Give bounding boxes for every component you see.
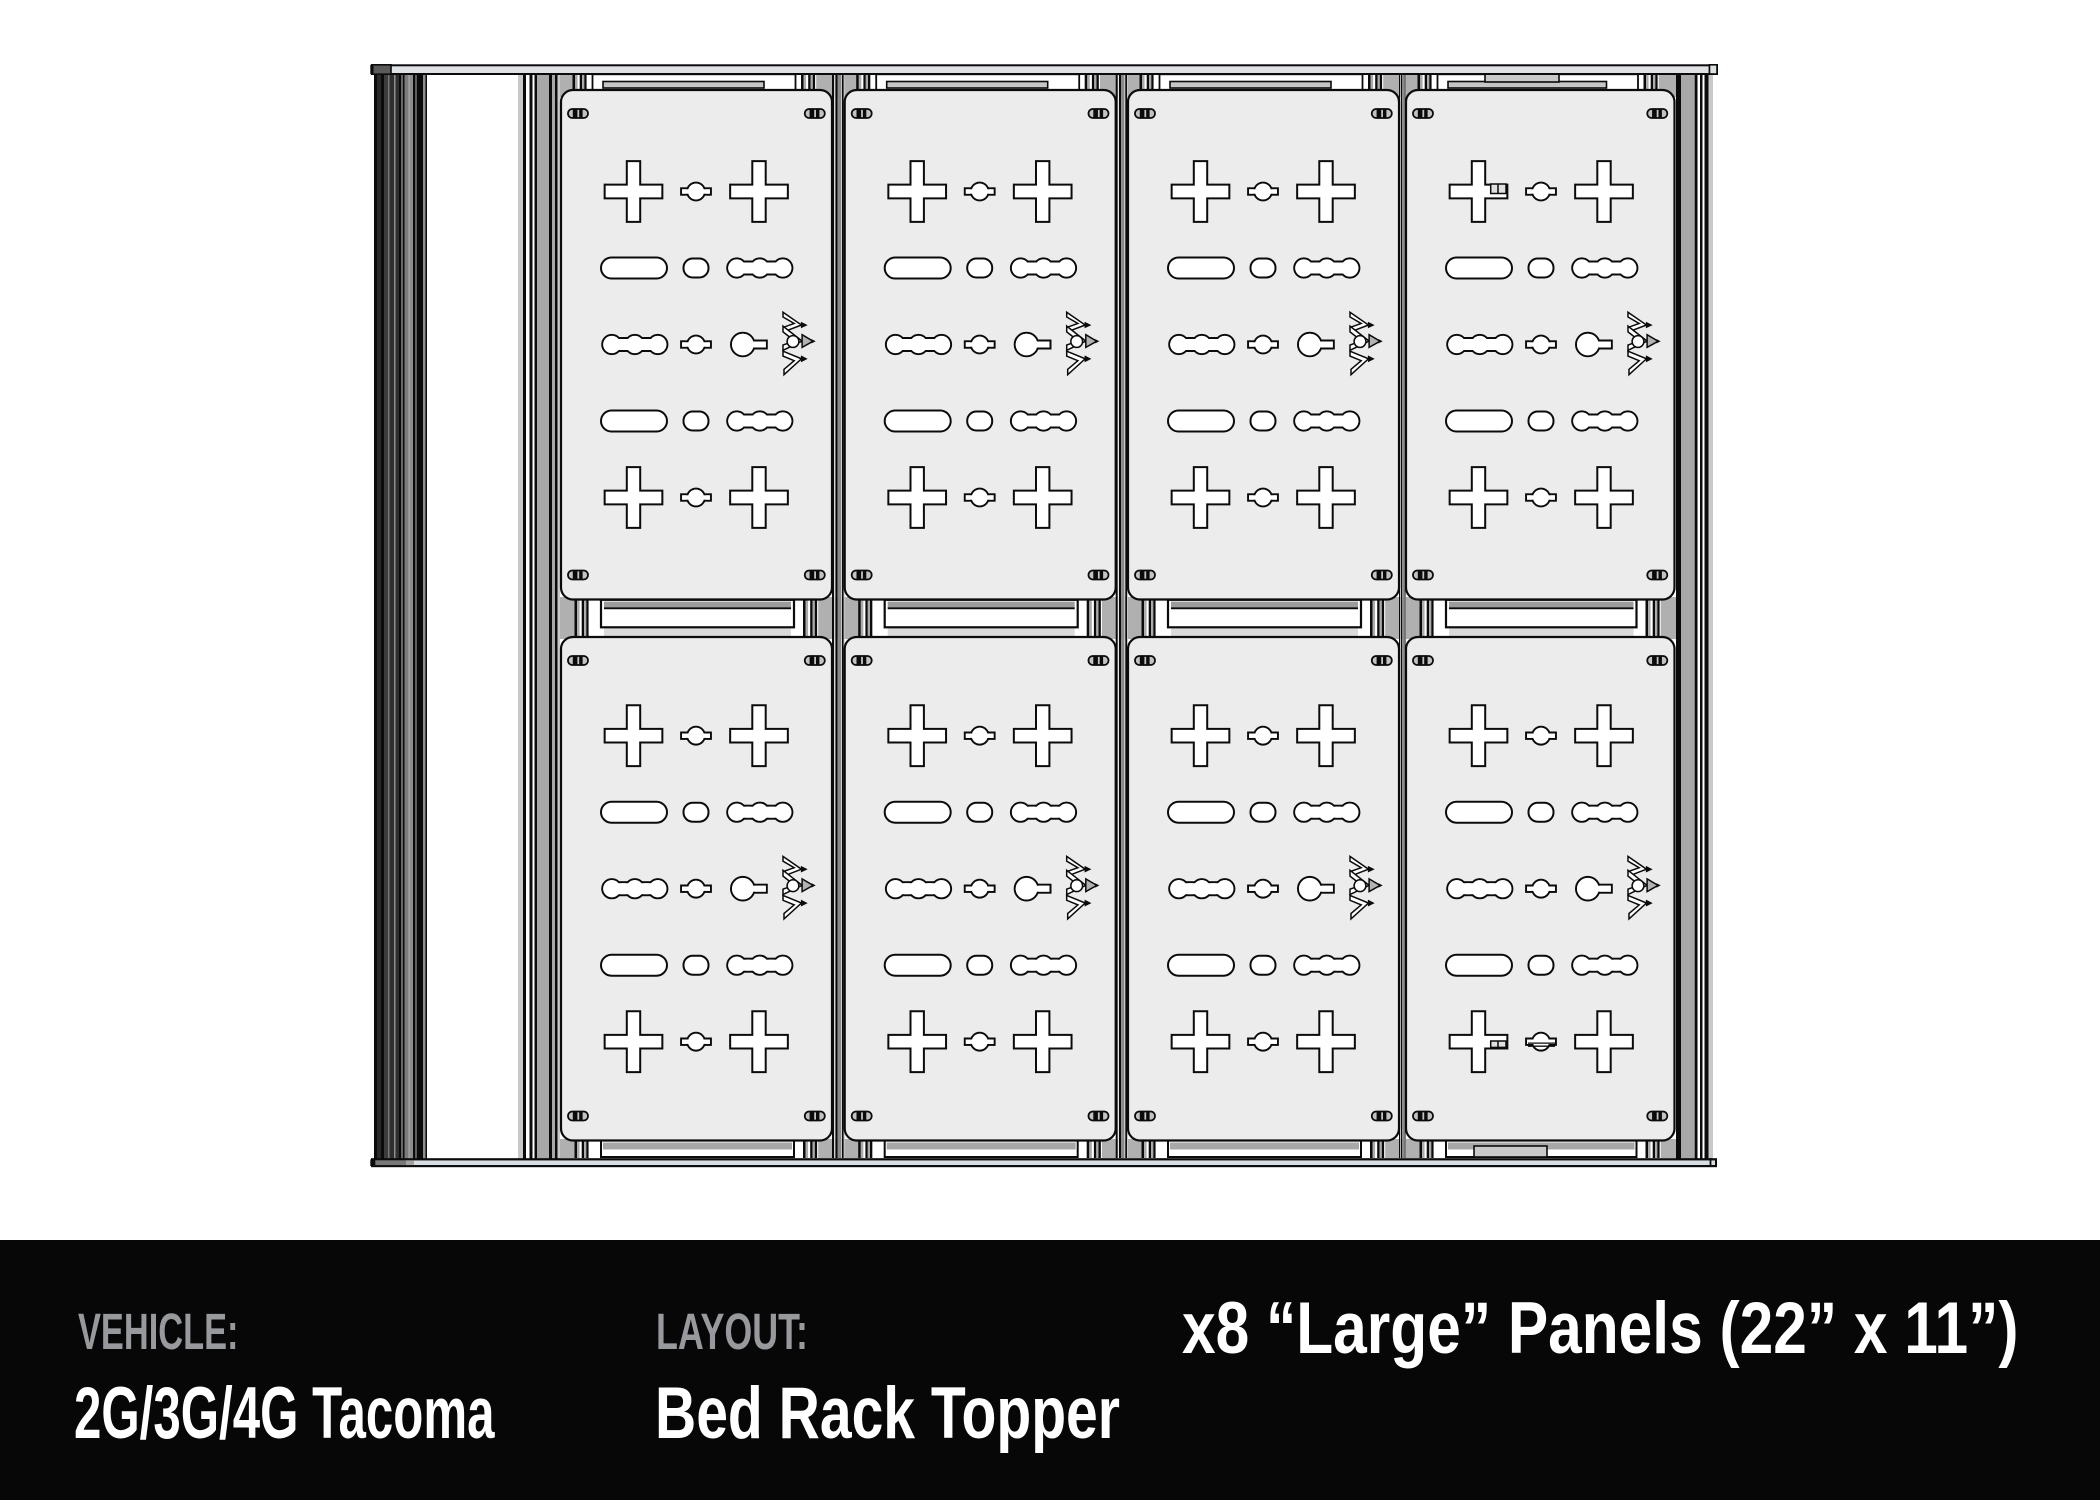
svg-text:x8 “Large” Panels (22” x 11”): x8 “Large” Panels (22” x 11”) <box>1182 1288 2019 1369</box>
svg-text:VEHICLE:: VEHICLE: <box>78 1303 239 1360</box>
svg-text:LAYOUT:: LAYOUT: <box>656 1303 808 1360</box>
svg-text:2G/3G/4G Tacoma: 2G/3G/4G Tacoma <box>74 1373 495 1454</box>
svg-text:Bed Rack Topper: Bed Rack Topper <box>655 1373 1120 1454</box>
